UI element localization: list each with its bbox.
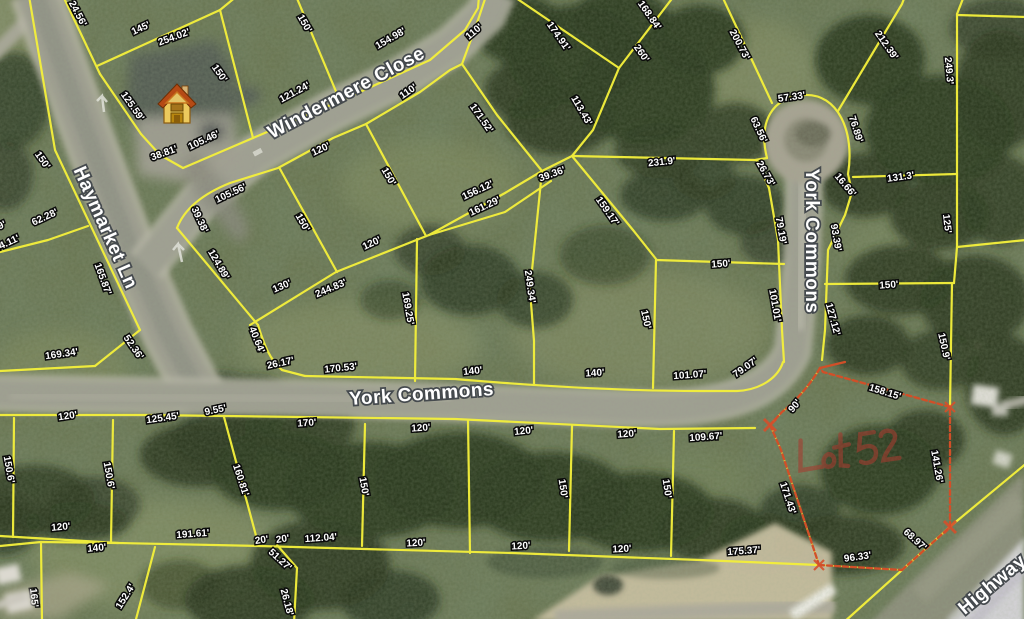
svg-text:120': 120' [514,425,534,438]
svg-text:120': 120' [617,428,637,440]
svg-text:101.07': 101.07' [673,369,707,382]
svg-text:20': 20' [254,534,269,547]
svg-text:150': 150' [711,258,731,270]
svg-text:112.04': 112.04' [304,532,337,545]
svg-text:120': 120' [406,538,426,550]
svg-text:20': 20' [275,533,290,546]
svg-text:175.37': 175.37' [727,545,761,558]
svg-text:170': 170' [297,417,317,429]
svg-text:140': 140' [585,368,605,380]
svg-text:120': 120' [51,521,71,534]
svg-text:150': 150' [879,279,899,291]
svg-text:191.61': 191.61' [176,528,210,541]
svg-text:120': 120' [511,541,531,553]
svg-text:109.67': 109.67' [689,431,723,444]
svg-text:140': 140' [87,542,107,555]
svg-text:120': 120' [411,422,431,434]
svg-text:140': 140' [463,365,483,378]
svg-text:125': 125' [940,214,953,234]
svg-text:120': 120' [612,544,632,556]
svg-text:York Commons: York Commons [801,168,822,313]
